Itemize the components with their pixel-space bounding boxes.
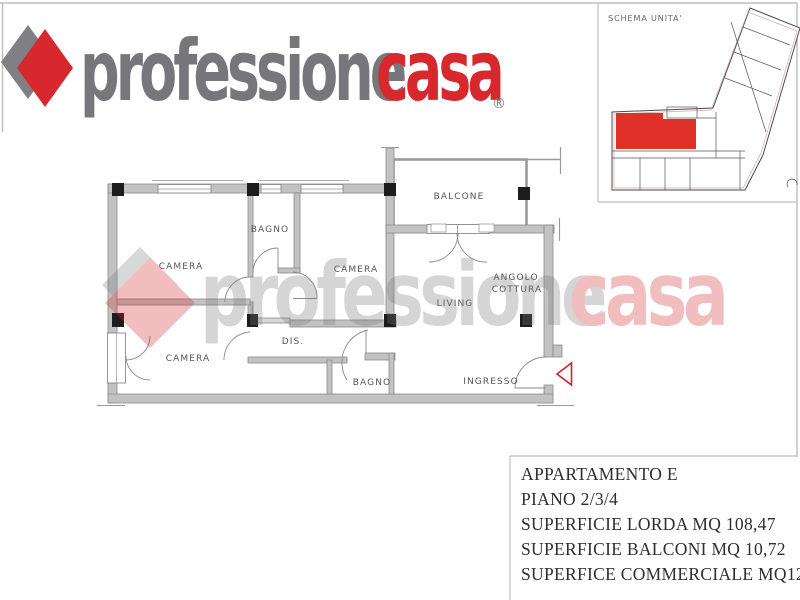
label-bagno-bottom: BAGNO xyxy=(353,378,391,388)
label-camera-top-left: CAMERA xyxy=(159,262,204,272)
logo: professione casa ® xyxy=(1,22,506,120)
wall-bottom xyxy=(108,394,553,403)
registered-mark: ® xyxy=(492,96,506,112)
info-floor: PIANO 2/3/4 xyxy=(521,489,618,509)
info-commercial-area: SUPERFICE COMMERCIALE MQ125,21 xyxy=(521,564,800,584)
door-entrance xyxy=(515,357,546,388)
floorplan-canvas: professione casa ® SCHEMA UNITA' xyxy=(0,0,800,600)
schema-unit-box: SCHEMA UNITA' xyxy=(598,3,800,202)
info-gross-area: SUPERFICIE LORDA MQ 108,47 xyxy=(521,514,776,534)
balcony xyxy=(394,147,562,232)
info-balcony-area: SUPERFICIE BALCONI MQ 10,72 xyxy=(521,539,786,559)
info-panel: APPARTAMENTO E PIANO 2/3/4 SUPERFICIE LO… xyxy=(510,456,800,600)
label-camera-bottom: CAMERA xyxy=(166,354,211,364)
wall-right-stub xyxy=(553,345,562,357)
info-apartment: APPARTAMENTO E xyxy=(521,464,678,484)
wall-bagno2-left xyxy=(327,360,332,394)
schema-building xyxy=(612,8,800,190)
label-bagno-top: BAGNO xyxy=(251,225,289,235)
watermark-word-gray: professione xyxy=(200,244,604,347)
watermark-word-red: casa xyxy=(569,244,725,347)
watermark: professione casa xyxy=(102,244,725,348)
floorplan-page: professione casa ® SCHEMA UNITA' xyxy=(0,0,800,600)
schema-title: SCHEMA UNITA' xyxy=(608,13,682,23)
entrance-arrow-icon xyxy=(557,363,572,385)
label-ingresso: INGRESSO xyxy=(463,377,519,387)
logo-word-gray: professione xyxy=(80,22,405,120)
label-balcone: BALCONE xyxy=(434,192,485,202)
logo-word-red: casa xyxy=(376,22,501,120)
